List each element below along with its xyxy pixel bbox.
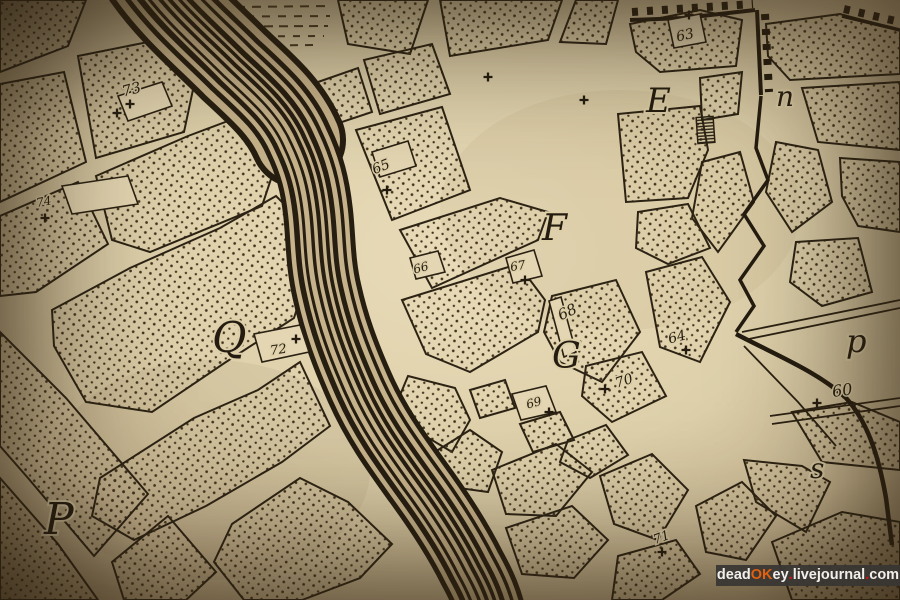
label-72: 72 [269,342,287,359]
label-F: F [541,208,569,249]
label-P: P [43,494,75,545]
label-67: 67 [509,258,527,275]
label-74: 74 [35,193,52,209]
label-G: G [552,336,581,377]
watermark: deadOKey.livejournal.com [716,565,900,586]
watermark-text: OK [751,565,773,586]
engraved-map: Q P F G E n p s 60 63 64 65 66 67 68 69 … [0,0,900,600]
label-s: s [810,452,824,485]
label-p: p [846,322,866,360]
label-Q: Q [212,313,246,362]
label-n: n [776,80,794,113]
watermark-text: ey [773,565,789,586]
watermark-text: com [869,565,899,586]
label-E: E [645,81,671,121]
hatched-building [696,116,715,143]
city-block [700,72,742,120]
watermark-text: dead [717,565,751,586]
map-photo: Q P F G E n p s 60 63 64 65 66 67 68 69 … [0,0,900,600]
city-block [802,82,900,150]
label-60: 60 [831,379,854,401]
watermark-text: livejournal [793,565,866,586]
